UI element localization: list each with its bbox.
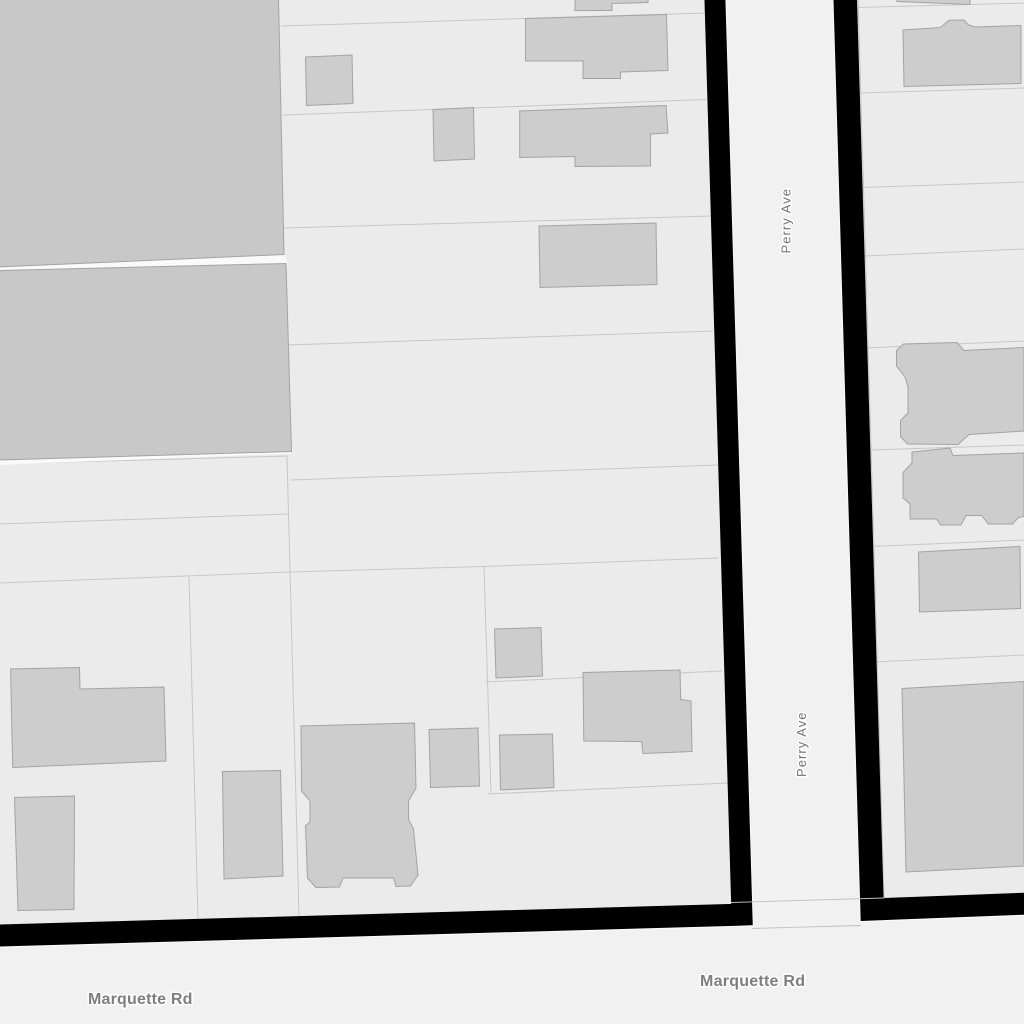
svg-text:Perry Ave: Perry Ave bbox=[794, 711, 809, 777]
svg-text:Marquette Rd: Marquette Rd bbox=[88, 991, 193, 1008]
svg-text:Marquette Rd: Marquette Rd bbox=[700, 973, 805, 990]
svg-text:Perry Ave: Perry Ave bbox=[779, 188, 794, 254]
